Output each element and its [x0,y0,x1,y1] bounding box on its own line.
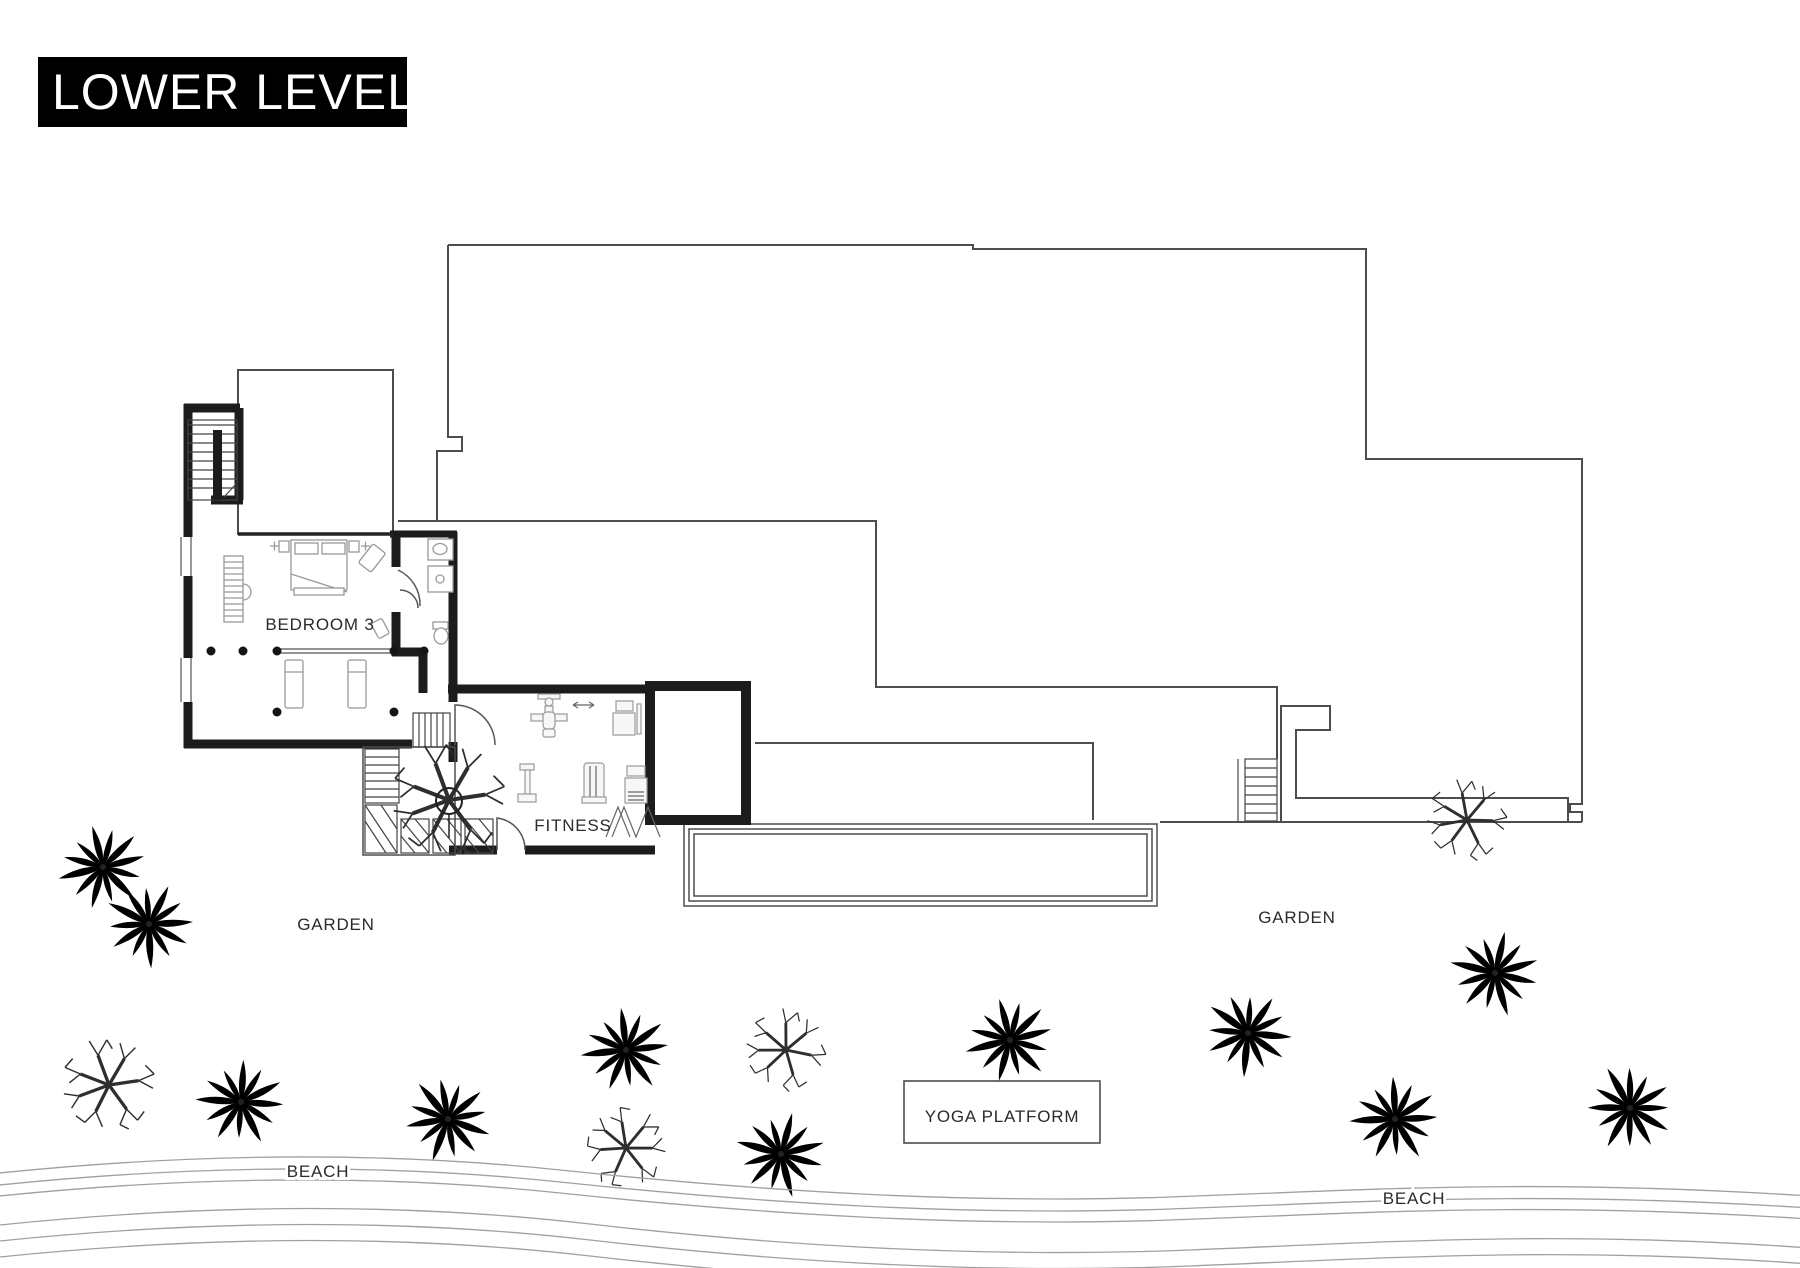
floor-plan-canvas: BEDROOM 3 FITNESS GARDEN GARDEN YOGA PLA… [0,0,1800,1268]
stair-stringer [213,430,222,500]
vanity [428,539,453,560]
branch-tree-icon [736,1000,836,1099]
right-stairs [1238,759,1277,821]
branch-tree-icon [1422,775,1512,864]
pool [684,824,1157,906]
palm-tree-icon [721,1095,838,1210]
suite-stairs [188,420,237,500]
palm-tree-icon [965,998,1052,1081]
exercise-bike [531,694,567,737]
armchair [358,544,385,573]
palm-tree-icon [1342,1069,1444,1168]
beach-east-label: BEACH [1383,1189,1446,1208]
nightstand [279,541,289,552]
pillow [322,543,345,554]
yoga-platform-label: YOGA PLATFORM [925,1107,1080,1126]
beach-waves [0,1157,1800,1268]
page-title: LOWER LEVEL [38,57,407,127]
palm-tree-icon [576,1002,674,1096]
palm-tree-icon [392,1060,504,1174]
treadmill [582,763,606,803]
arrow-icon [573,702,594,708]
garden-west-label: GARDEN [297,915,375,934]
palm-tree-icon [1187,972,1306,1092]
rowing-machine [625,766,647,803]
weight-machine [613,701,641,735]
bed-throw [294,588,344,595]
bench [518,764,536,802]
palm-tree-icon [1579,1054,1682,1159]
fitness-label: FITNESS [534,816,611,835]
floor-plan-page: BEDROOM 3 FITNESS GARDEN GARDEN YOGA PLA… [0,0,1800,1268]
toilet [434,628,448,644]
branch-tree-icon [64,1040,154,1129]
palm-tree-icon [185,1048,293,1154]
sun-lounger [348,660,366,708]
shower [428,566,453,592]
palm-tree-icon [1436,915,1552,1029]
sun-lounger [285,660,303,708]
pool-room [650,686,746,820]
garden-east-label: GARDEN [1258,908,1336,927]
columns [207,647,429,717]
doors [398,570,525,850]
pillow [295,543,318,554]
beach-west-label: BEACH [287,1162,350,1181]
page-title-text: LOWER LEVEL [52,63,416,121]
vegetation [58,745,1681,1211]
bedroom3-label: BEDROOM 3 [265,615,374,634]
wardrobe [224,556,243,622]
nightstand [349,541,359,552]
